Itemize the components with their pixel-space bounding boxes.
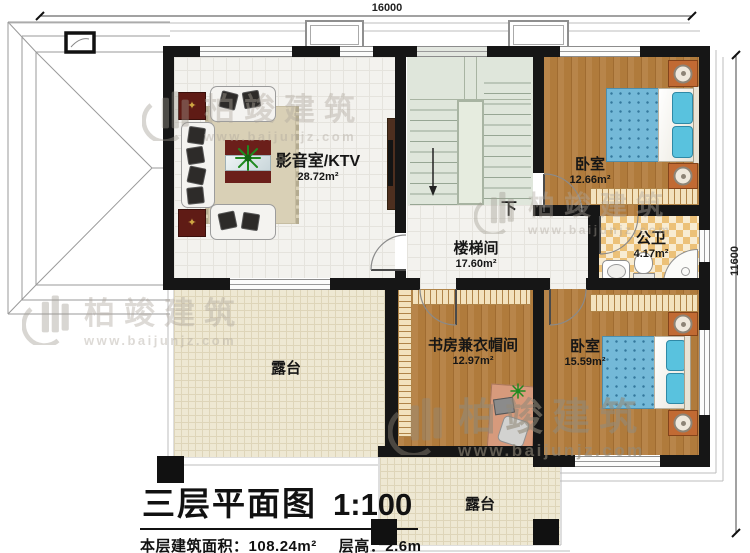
drawing-subtitle: 本层建筑面积：108.24m²层高：2.6m bbox=[140, 535, 421, 553]
stair-rail-line bbox=[476, 57, 477, 100]
bed1-nightstand bbox=[668, 163, 698, 189]
room-label-bathroom: 公卫 4.17m² bbox=[634, 231, 669, 260]
room-label-bedroom1: 卧室 12.66m² bbox=[570, 157, 611, 186]
window bbox=[340, 46, 373, 57]
stair-flight-left bbox=[410, 100, 457, 205]
lamp bbox=[674, 64, 693, 83]
chimney bbox=[66, 33, 94, 52]
study-closet-left bbox=[398, 289, 412, 437]
computer-monitor bbox=[493, 397, 515, 416]
bed2-nightstand bbox=[668, 312, 698, 336]
room-label-terrace2: 露台 bbox=[465, 497, 495, 514]
bed2-headboard bbox=[684, 334, 691, 411]
bedroom1-closet bbox=[590, 188, 698, 205]
stair-flight-right bbox=[484, 73, 531, 205]
room-label-bedroom2: 卧室 15.59m² bbox=[565, 339, 606, 368]
sliding-door bbox=[230, 279, 330, 290]
room-label-stairhall: 楼梯间 17.60m² bbox=[453, 241, 498, 270]
desk-plant bbox=[510, 383, 526, 399]
tv-screen bbox=[388, 140, 393, 186]
lamp bbox=[674, 414, 693, 433]
drawing-title: 三层平面图 bbox=[142, 485, 317, 522]
speaker-cabinet: ✦ bbox=[178, 92, 206, 120]
title-block: 三层平面图1:100 本层建筑面积：108.24m²层高：2.6m bbox=[140, 477, 421, 553]
stair-stringer bbox=[457, 100, 484, 205]
floor-area-label: 本层建筑面积： bbox=[140, 538, 249, 553]
stair-rail-line bbox=[464, 57, 465, 100]
floor-area-value: 108.24m² bbox=[249, 538, 317, 553]
sofa-cushion bbox=[242, 90, 262, 110]
terrace-pillar bbox=[533, 519, 559, 545]
room-label-ktv: 影音室/KTV 28.72m² bbox=[276, 153, 360, 183]
bed1-pillow bbox=[672, 126, 693, 158]
sink-basin bbox=[607, 264, 626, 279]
floor-height-value: 2.6m bbox=[385, 538, 421, 553]
sofa-cushion bbox=[186, 146, 205, 165]
lamp bbox=[674, 315, 693, 334]
bed1-mattress bbox=[606, 88, 666, 162]
room-label-study: 书房兼衣帽间 12.97m² bbox=[428, 338, 518, 367]
speaker-cabinet: ✦ bbox=[178, 209, 206, 237]
sofa-cushion bbox=[186, 186, 205, 205]
window bbox=[699, 330, 710, 415]
bed1-pillow bbox=[672, 92, 693, 124]
sofa-cushion bbox=[187, 126, 206, 145]
stair-down-label: 下 bbox=[501, 201, 517, 219]
window bbox=[560, 46, 640, 57]
drawing-scale: 1:100 bbox=[333, 487, 412, 522]
bed2-pillow bbox=[666, 340, 686, 371]
sofa-cushion bbox=[241, 212, 260, 231]
bedroom2-closet bbox=[590, 294, 698, 312]
dimension-right: 11600 bbox=[729, 226, 741, 296]
study-closet-top bbox=[412, 289, 531, 305]
shower-drain bbox=[681, 267, 690, 276]
dimension-top: 16000 bbox=[372, 2, 403, 14]
sofa-cushion bbox=[217, 210, 237, 230]
bed2-pillow bbox=[666, 373, 686, 404]
potted-plant bbox=[233, 143, 263, 173]
bed1-nightstand bbox=[668, 60, 698, 87]
window bbox=[200, 46, 292, 57]
bed2-mattress bbox=[602, 336, 662, 409]
sofa-cushion bbox=[186, 165, 206, 185]
drawing-title-row: 三层平面图1:100 bbox=[140, 477, 418, 530]
lamp bbox=[674, 167, 693, 186]
bathroom-window bbox=[699, 230, 710, 262]
watermark-logo-icon bbox=[22, 291, 76, 345]
bed2-nightstand bbox=[668, 410, 698, 436]
floor-plan-canvas: ✦ ✦ bbox=[0, 0, 750, 553]
stair-window bbox=[417, 46, 487, 57]
window bbox=[575, 456, 660, 467]
room-label-terrace1: 露台 bbox=[271, 361, 301, 378]
stair-landing-line bbox=[410, 99, 531, 100]
floor-height-label: 层高： bbox=[339, 538, 386, 553]
